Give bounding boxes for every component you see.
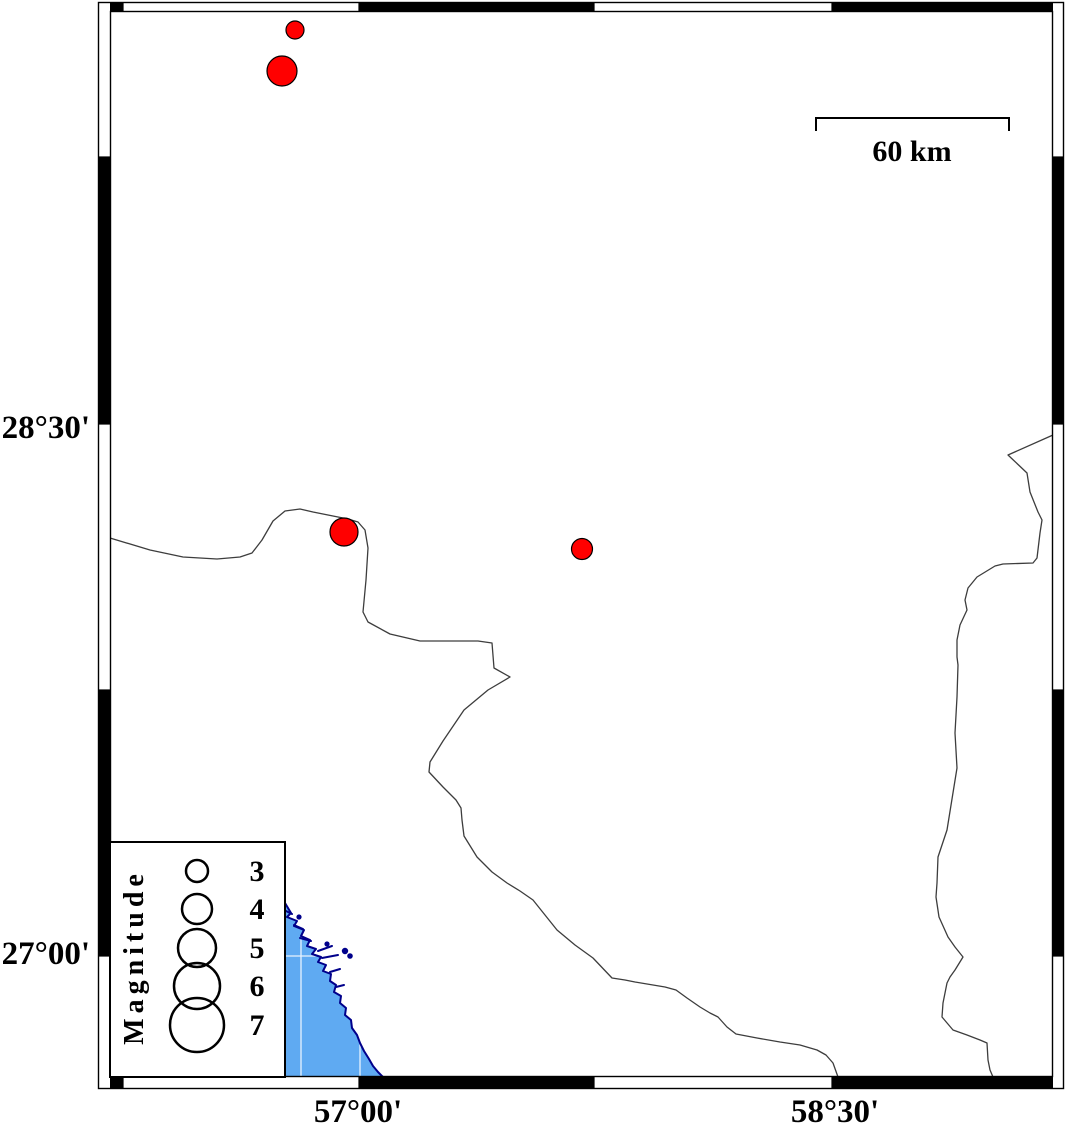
earthquake-marker [286, 21, 304, 39]
lon-label-5700: 57°00' [314, 1094, 402, 1126]
legend-value: 7 [250, 1009, 265, 1042]
earthquake-marker [267, 56, 297, 86]
boundary-east [936, 435, 1053, 1077]
legend-value: 6 [250, 970, 265, 1003]
earthquake-marker [330, 518, 358, 546]
sea-fill [270, 896, 383, 1077]
map-canvas: 60 km Magnitude 3 4 5 6 7 28°30' 27°00' … [0, 0, 1066, 1126]
legend-value: 5 [250, 932, 265, 965]
scale-bar: 60 km [816, 118, 1009, 168]
legend-value: 4 [250, 893, 265, 926]
scale-bar-label: 60 km [872, 135, 951, 168]
magnitude-legend: Magnitude 3 4 5 6 7 [110, 842, 285, 1077]
lat-label-2830: 28°30' [2, 410, 90, 446]
earthquake-marker [572, 539, 593, 560]
legend-value: 3 [250, 855, 265, 888]
earthquake-markers [267, 21, 593, 560]
legend-title: Magnitude [119, 869, 150, 1045]
lon-label-5830: 58°30' [791, 1094, 879, 1126]
lat-label-2700: 27°00' [2, 936, 90, 972]
scale-bar-bracket [816, 118, 1009, 131]
seismicity-map-page: 60 km Magnitude 3 4 5 6 7 28°30' 27°00' … [0, 0, 1066, 1126]
legend-values: 3 4 5 6 7 [250, 855, 265, 1042]
water-body [270, 896, 383, 1077]
